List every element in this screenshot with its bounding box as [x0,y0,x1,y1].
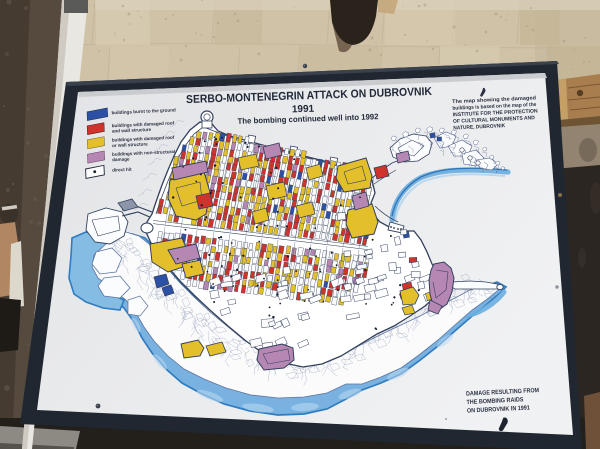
svg-text:direct hit: direct hit [112,167,132,173]
svg-text:damage: damage [112,156,130,162]
